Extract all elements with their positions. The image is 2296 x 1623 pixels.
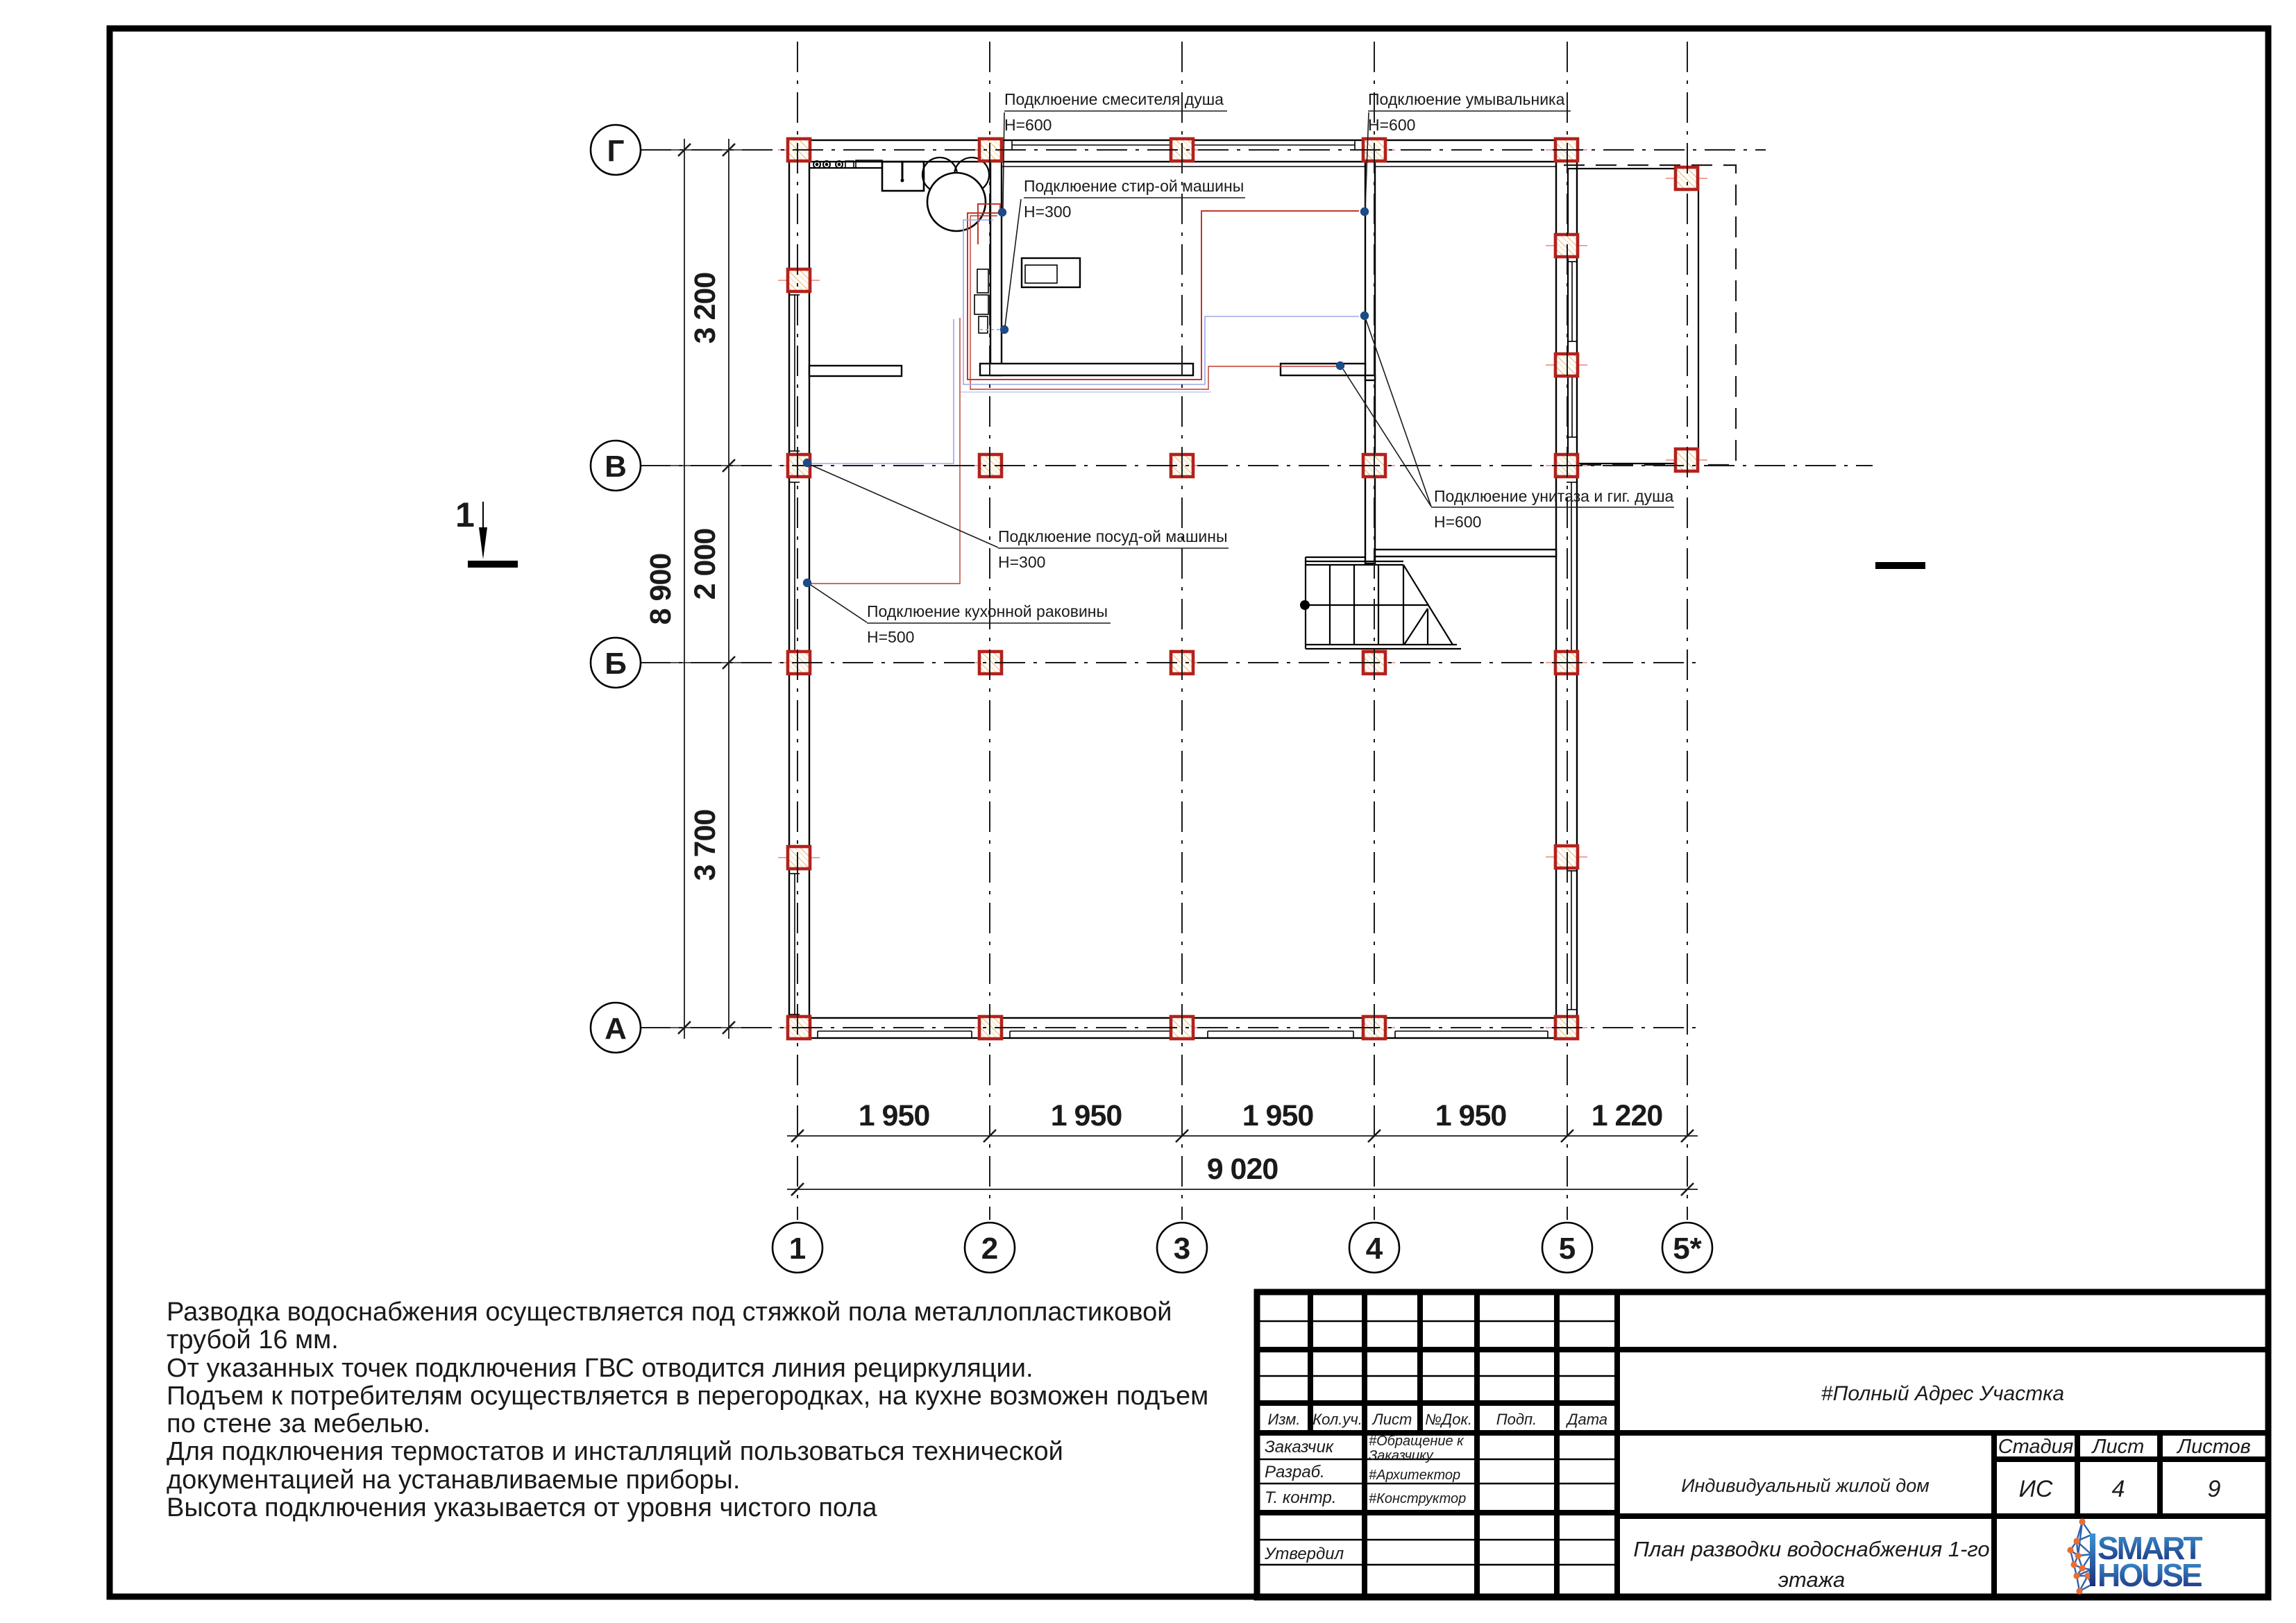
svg-text:3: 3 xyxy=(1174,1232,1190,1266)
svg-text:2: 2 xyxy=(981,1232,998,1266)
svg-text:HOUSE: HOUSE xyxy=(2097,1557,2202,1593)
svg-text:1 950: 1 950 xyxy=(1051,1099,1122,1132)
svg-text:5: 5 xyxy=(1559,1232,1576,1266)
svg-text:H=600: H=600 xyxy=(1434,513,1481,531)
svg-text:H=600: H=600 xyxy=(1004,116,1052,134)
svg-text:Заказчик: Заказчик xyxy=(1265,1438,1335,1456)
svg-text:1: 1 xyxy=(455,495,475,534)
svg-text:#Полный Адрес Участка: #Полный Адрес Участка xyxy=(1821,1382,2064,1405)
svg-text:H=600: H=600 xyxy=(1368,116,1415,134)
svg-text:ИС: ИС xyxy=(2019,1476,2053,1502)
svg-text:Подп.: Подп. xyxy=(1496,1411,1537,1428)
svg-text:#Обращение к: #Обращение к xyxy=(1369,1434,1464,1449)
svg-text:Подклюение смесителя душа: Подклюение смесителя душа xyxy=(1004,90,1224,108)
svg-text:4: 4 xyxy=(2112,1476,2125,1502)
svg-text:3 200: 3 200 xyxy=(689,273,722,344)
svg-text:1: 1 xyxy=(789,1232,806,1266)
svg-text:Т. контр.: Т. контр. xyxy=(1265,1488,1337,1507)
svg-text:5*: 5* xyxy=(1673,1232,1702,1266)
svg-text:#Архитектор: #Архитектор xyxy=(1369,1468,1460,1483)
svg-text:Кол.уч.: Кол.уч. xyxy=(1312,1411,1362,1428)
svg-text:Заказчику: Заказчику xyxy=(1369,1448,1434,1463)
svg-text:Для подключения термостатов и: Для подключения термостатов и инсталляци… xyxy=(167,1437,1063,1466)
svg-text:H=300: H=300 xyxy=(998,553,1045,571)
svg-text:План разводки водоснабжения 1-: План разводки водоснабжения 1-го xyxy=(1633,1537,1989,1561)
svg-text:H=300: H=300 xyxy=(1024,203,1071,221)
svg-text:Утвердил: Утвердил xyxy=(1264,1545,1344,1563)
svg-text:Изм.: Изм. xyxy=(1268,1411,1301,1428)
svg-text:#Конструктор: #Конструктор xyxy=(1369,1491,1466,1506)
svg-text:8 900: 8 900 xyxy=(644,554,677,625)
svg-text:Лист: Лист xyxy=(2091,1436,2145,1458)
svg-text:1 950: 1 950 xyxy=(1435,1099,1507,1132)
svg-text:Лист: Лист xyxy=(1371,1411,1412,1428)
svg-text:Разводка водоснабжения осущест: Разводка водоснабжения осуществляется по… xyxy=(167,1298,1172,1327)
svg-text:1 950: 1 950 xyxy=(1242,1099,1314,1132)
svg-text:этажа: этажа xyxy=(1778,1567,1846,1592)
svg-text:1 220: 1 220 xyxy=(1592,1099,1663,1132)
svg-text:Подклюение умывальника: Подклюение умывальника xyxy=(1368,90,1565,108)
svg-text:Дата: Дата xyxy=(1565,1411,1607,1428)
svg-text:1 950: 1 950 xyxy=(859,1099,930,1132)
svg-text:9: 9 xyxy=(2208,1476,2221,1502)
svg-text:Подклюение кухонной раковины: Подклюение кухонной раковины xyxy=(867,602,1108,620)
svg-text:4: 4 xyxy=(1366,1232,1383,1266)
svg-text:Стадия: Стадия xyxy=(1998,1436,2074,1458)
svg-text:Индивидуальный жилой дом: Индивидуальный жилой дом xyxy=(1681,1475,1930,1496)
svg-text:В: В xyxy=(605,450,627,484)
svg-text:От указанных точек подключения: От указанных точек подключения ГВС отвод… xyxy=(167,1354,1033,1383)
svg-text:документацией на устанавливаем: документацией на устанавливаемые приборы… xyxy=(167,1465,740,1495)
svg-text:трубой 16 мм.: трубой 16 мм. xyxy=(167,1325,339,1354)
svg-text:А: А xyxy=(605,1012,627,1046)
svg-text:H=500: H=500 xyxy=(867,628,914,646)
svg-text:Разраб.: Разраб. xyxy=(1265,1463,1325,1481)
svg-text:3 700: 3 700 xyxy=(689,810,722,881)
svg-text:Б: Б xyxy=(605,647,627,681)
svg-text:Подклюение унитаза и гиг. душа: Подклюение унитаза и гиг. душа xyxy=(1434,487,1674,505)
svg-text:Подъем к потребителям осуществ: Подъем к потребителям осуществляется в п… xyxy=(167,1382,1208,1411)
svg-text:2 000: 2 000 xyxy=(689,529,722,600)
svg-text:9 020: 9 020 xyxy=(1207,1153,1278,1186)
svg-text:Подклюение посуд-ой машины: Подклюение посуд-ой машины xyxy=(998,527,1227,545)
svg-text:Листов: Листов xyxy=(2176,1436,2251,1458)
svg-text:по стене за мебелью.: по стене за мебелью. xyxy=(167,1409,430,1438)
svg-text:Высота подключения указывается: Высота подключения указывается от уровня… xyxy=(167,1493,877,1522)
svg-text:Подклюение стир-ой машины: Подклюение стир-ой машины xyxy=(1024,177,1244,195)
svg-text:Г: Г xyxy=(607,134,625,168)
svg-text:№Док.: №Док. xyxy=(1425,1411,1472,1428)
